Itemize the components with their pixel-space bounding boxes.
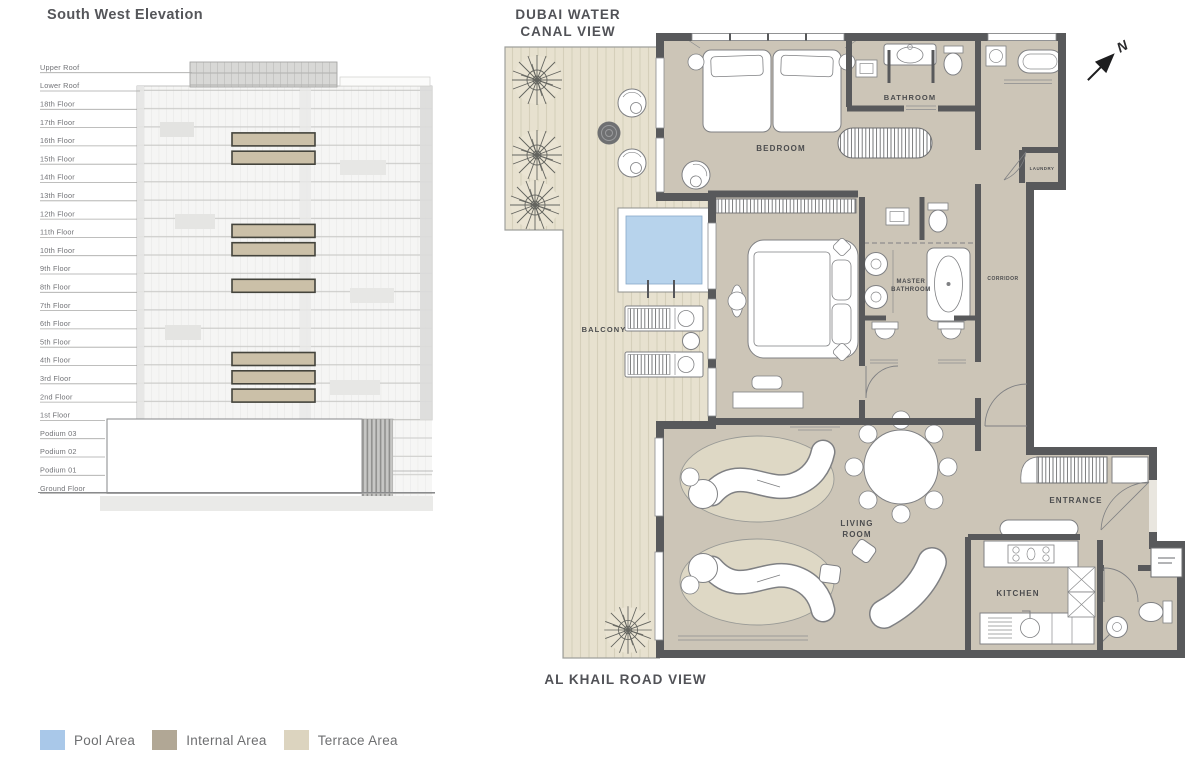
upper-roof-block bbox=[190, 62, 337, 87]
floor-label: 5th Floor bbox=[40, 337, 71, 346]
compass-n-label: N bbox=[1114, 36, 1131, 55]
floor-label: 11th Floor bbox=[40, 228, 75, 237]
floor-label: 17th Floor bbox=[40, 118, 75, 127]
dining-table-icon bbox=[845, 411, 957, 523]
pool-area-label: Pool Area bbox=[74, 733, 135, 748]
floor-label: 16th Floor bbox=[40, 136, 75, 145]
floor-label: Podium 01 bbox=[40, 466, 77, 475]
unit-highlight bbox=[232, 243, 315, 256]
entrance-label: ENTRANCE bbox=[1049, 496, 1102, 505]
laundry-label: LAUNDRY bbox=[1030, 166, 1055, 171]
floor-label: 14th Floor bbox=[40, 173, 75, 182]
entrance-furniture bbox=[1021, 457, 1148, 483]
internal-area-swatch bbox=[152, 730, 177, 750]
floor-label: Ground Floor bbox=[40, 484, 86, 493]
bedroom-label: BEDROOM bbox=[756, 144, 805, 153]
side-table-icon bbox=[683, 333, 700, 350]
closet-icon bbox=[838, 128, 932, 158]
elevation-title: South West Elevation bbox=[47, 7, 203, 23]
floor-plan-drawing: BEDROOM BATHROOM LAUNDRY MASTER BATHROOM… bbox=[495, 0, 1200, 700]
floor-label: 13th Floor bbox=[40, 191, 75, 200]
entry-closet-icon bbox=[1037, 457, 1107, 483]
unit-highlight bbox=[232, 151, 315, 164]
terrace-area-label: Terrace Area bbox=[318, 733, 398, 748]
floor-label: 8th Floor bbox=[40, 283, 71, 292]
floor-label: Lower Roof bbox=[40, 81, 80, 90]
floor-label: Podium 03 bbox=[40, 429, 77, 438]
floor-label: 12th Floor bbox=[40, 209, 75, 218]
terrace-area-swatch bbox=[284, 730, 309, 750]
floor-label: Upper Roof bbox=[40, 63, 80, 72]
dresser-icon bbox=[733, 392, 803, 408]
master-bathroom-label-1: MASTER bbox=[897, 279, 926, 285]
legend-item-internal: Internal Area bbox=[152, 730, 266, 750]
unit-highlight bbox=[232, 224, 315, 237]
unit-highlight bbox=[232, 279, 315, 292]
fire-table-icon bbox=[598, 122, 621, 145]
wardrobe-icon bbox=[716, 199, 856, 213]
floor-label: 7th Floor bbox=[40, 301, 71, 310]
floor-label: 9th Floor bbox=[40, 264, 71, 273]
floor-label: 15th Floor bbox=[40, 154, 75, 163]
shaft-box bbox=[1151, 548, 1182, 577]
floor-label: 18th Floor bbox=[40, 100, 75, 109]
road-view-label: AL KHAIL ROAD VIEW bbox=[518, 671, 733, 688]
floor-label: 10th Floor bbox=[40, 246, 75, 255]
living-room-label-1: LIVING bbox=[840, 519, 873, 528]
legend: Pool Area Internal Area Terrace Area bbox=[40, 730, 398, 750]
internal-area-label: Internal Area bbox=[186, 733, 266, 748]
ground-strip bbox=[100, 496, 433, 511]
master-bathroom-label-2: BATHROOM bbox=[891, 287, 931, 293]
unit-highlight bbox=[232, 371, 315, 384]
corridor-label: CORRIDOR bbox=[987, 276, 1018, 282]
unit-highlight bbox=[232, 353, 315, 366]
legend-item-pool: Pool Area bbox=[40, 730, 135, 750]
floor-label: Podium 02 bbox=[40, 447, 77, 456]
floor-label: 6th Floor bbox=[40, 319, 71, 328]
unit-highlight bbox=[232, 389, 315, 402]
floor-label: 2nd Floor bbox=[40, 392, 73, 401]
floor-label: 1st Floor bbox=[40, 411, 71, 420]
floor-label: 3rd Floor bbox=[40, 374, 71, 383]
unit-highlight bbox=[232, 133, 315, 146]
balcony-label: BALCONY bbox=[582, 325, 627, 334]
elevation-drawing: Upper RoofLower Roof18th Floor17th Floor… bbox=[30, 40, 460, 520]
floor-label: 4th Floor bbox=[40, 356, 71, 365]
pool bbox=[618, 208, 710, 298]
north-compass-icon: N bbox=[1082, 36, 1131, 85]
bathroom-label: BATHROOM bbox=[884, 93, 936, 102]
kitchen-label: KITCHEN bbox=[996, 589, 1039, 598]
legend-item-terrace: Terrace Area bbox=[284, 730, 398, 750]
living-room-label-2: ROOM bbox=[842, 530, 871, 539]
pool-area-swatch bbox=[40, 730, 65, 750]
kitchen-sink-icon bbox=[1021, 619, 1040, 638]
